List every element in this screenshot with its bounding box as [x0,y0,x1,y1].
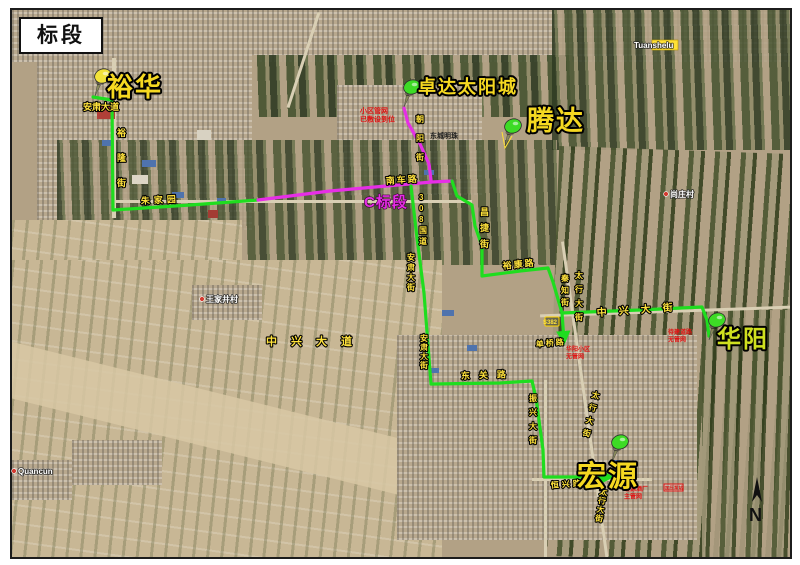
road-line [112,58,116,218]
building-roof [442,310,454,316]
satellite-patch [72,440,162,485]
building-roof [97,105,115,119]
satellite-patch [552,10,790,150]
map-screenshot: 安肃大道裕隆街朱家园朝阳街南车路308国道昌捷街裕康路安肃大街安肃大街中兴大道秦… [0,0,800,565]
section-title-box: 标段 [19,17,103,54]
building-roof [197,130,211,140]
building-roof [208,210,218,218]
building-roof [172,192,184,198]
building-roof [612,460,622,465]
building-roof [467,345,477,351]
satellite-patch [12,460,72,500]
satellite-map [10,8,792,559]
building-roof [424,170,434,175]
section-title: 标段 [37,24,85,47]
building-roof [132,175,148,184]
building-roof [102,140,112,146]
road-line [112,200,472,203]
road-line [532,478,652,481]
road-line [544,380,547,559]
satellite-patch [192,285,262,320]
building-roof [217,198,226,204]
building-roof [142,160,156,167]
satellite-patch [702,310,792,559]
building-roof [430,368,439,373]
satellite-patch [397,335,697,540]
